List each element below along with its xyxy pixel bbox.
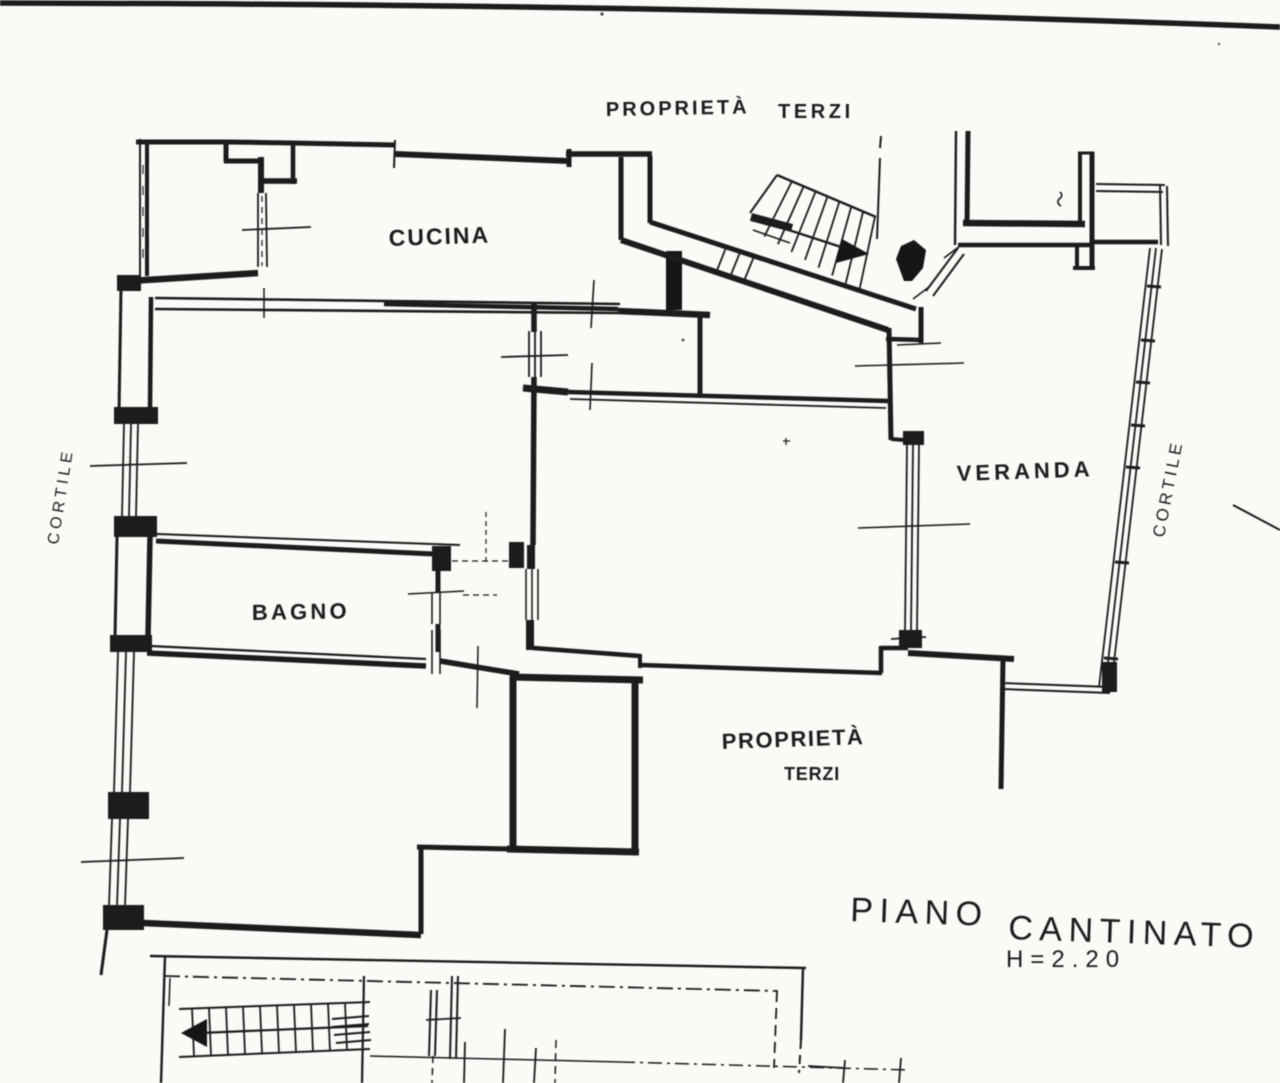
svg-text:VERANDA: VERANDA [956,456,1094,486]
svg-text:PIANO: PIANO [850,891,990,934]
svg-text:H=2.20: H=2.20 [1006,946,1126,973]
svg-text:BAGNO: BAGNO [252,598,350,625]
svg-text:CUCINA: CUCINA [388,221,490,251]
svg-text:PROPRIETÀ: PROPRIETÀ [606,95,750,121]
svg-text:PROPRIETÀ: PROPRIETÀ [721,724,865,754]
svg-text:TERZI: TERZI [784,764,840,784]
svg-text:TERZI: TERZI [778,101,854,123]
